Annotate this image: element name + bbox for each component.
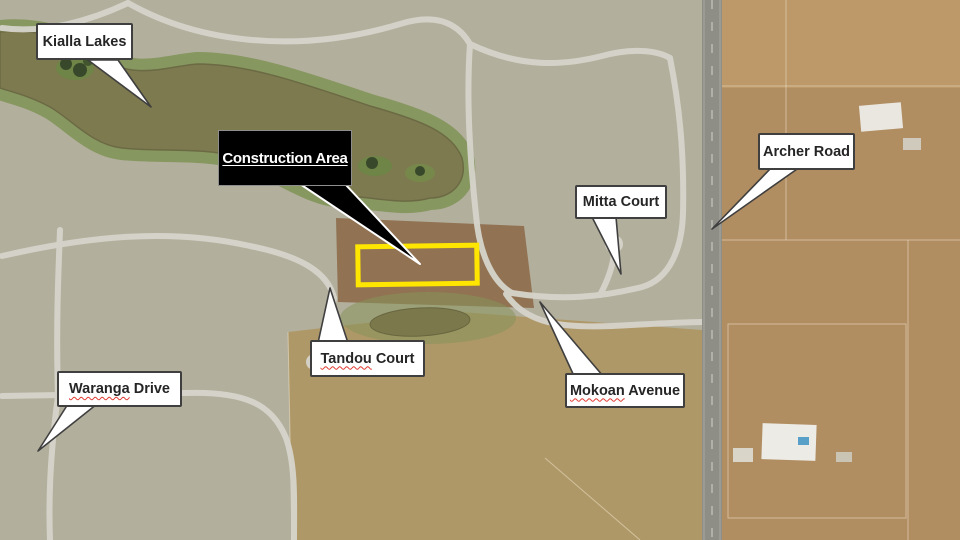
callout-label: Mokoan	[570, 383, 625, 399]
callout-mokoan-avenue: Mokoan Avenue	[565, 373, 685, 408]
callout-mitta-court: Mitta Court	[575, 185, 667, 219]
callout-label: Drive	[130, 381, 170, 397]
callout-label: Court	[372, 351, 415, 367]
callout-archer-road: Archer Road	[758, 133, 855, 170]
construction-area-label: Construction Area	[222, 150, 347, 167]
callout-construction-area: Construction Area	[218, 130, 352, 186]
swimming-pool	[798, 437, 809, 445]
callout-label: Avenue	[625, 383, 680, 399]
annotated-aerial-map: Kialla Lakes Construction Area Mitta Cou…	[0, 0, 960, 540]
callout-label: Archer Road	[763, 144, 850, 160]
callout-tandou-court: Tandou Court	[310, 340, 425, 377]
callout-waranga-drive: Waranga Drive	[57, 371, 182, 407]
callout-label: Waranga	[69, 381, 130, 397]
callout-label: Kialla Lakes	[43, 34, 127, 50]
callout-label: Tandou	[321, 351, 372, 367]
archer-road-surface	[702, 0, 722, 540]
callout-kialla-lakes: Kialla Lakes	[36, 23, 133, 60]
aerial-basemap	[0, 0, 960, 540]
callout-label: Mitta Court	[583, 194, 660, 210]
